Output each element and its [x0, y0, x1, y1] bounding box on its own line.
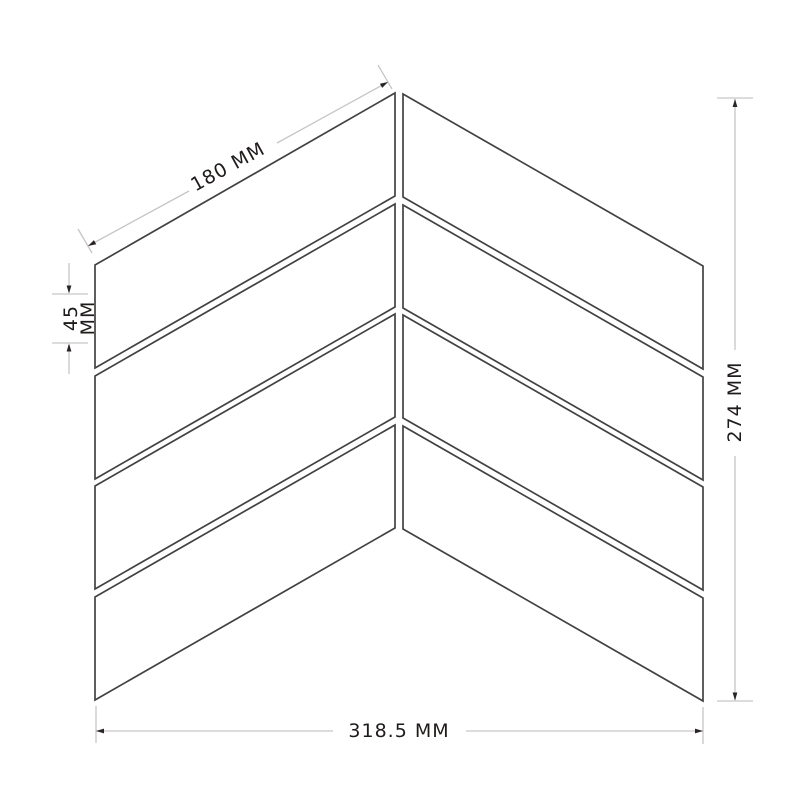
- arrowhead-icon: [67, 286, 72, 294]
- tile-width-unit-label: MM: [77, 301, 99, 336]
- dimension-panel-height: 274 MM: [717, 98, 753, 701]
- chevron-tile-dimension-diagram: 180 MM 45 MM 274 MM: [0, 0, 800, 800]
- extension-line: [378, 65, 392, 89]
- arrowhead-icon: [695, 729, 703, 734]
- dimension-tile-width: 45 MM: [52, 263, 99, 374]
- arrowhead-icon: [67, 344, 72, 352]
- tile-column-left: [95, 93, 395, 700]
- arrowhead-icon: [96, 729, 104, 734]
- tile-column-right: [403, 94, 703, 701]
- panel-height-label: 274 MM: [724, 361, 746, 442]
- arrowhead-icon: [380, 82, 388, 88]
- dimension-panel-width: 318.5 MM: [96, 706, 703, 744]
- diagram-svg: 180 MM 45 MM 274 MM: [0, 0, 800, 800]
- arrowhead-icon: [733, 99, 738, 107]
- panel-width-label: 318.5 MM: [348, 720, 449, 742]
- arrowhead-icon: [733, 693, 738, 701]
- extension-line: [78, 229, 92, 253]
- arrowhead-icon: [88, 240, 96, 246]
